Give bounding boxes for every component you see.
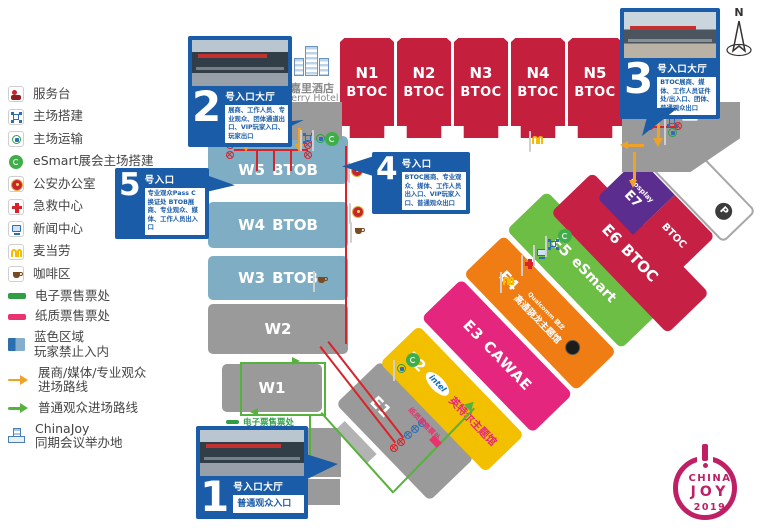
legend-item-conference: ChinaJoy同期会议举办地 [8,422,200,451]
intel-logo: intel [422,368,453,400]
paper-ticket-bar-icon [8,314,26,320]
legend-label: 咖啡区 [33,267,71,281]
construction-icon [8,109,24,125]
legend-label: 主场搭建 [33,109,83,123]
entrance-photo [192,40,288,86]
hall-id: N1 [356,64,379,82]
mcdonalds-icon [8,244,24,260]
visitor-route-arrow-icon [250,408,258,416]
ticket-booth-marker-icon [226,151,234,159]
hall-id: W4 [238,216,265,234]
legend-label: 服务台 [33,87,71,101]
legend-label: 展商/媒体/专业观众 [38,366,146,380]
hall-w2: W2 [208,304,348,354]
hall-type: BTOB [272,269,318,287]
hall-n1: N1BTOC [340,38,394,138]
exhibitor-route [628,144,644,147]
mcdonalds-icon [500,272,502,293]
exhibitor-route [633,152,636,180]
legend-item-coffee: 咖啡区 [8,266,200,282]
hall-type: BTOB [272,216,318,234]
visitor-route-arrow-icon [8,403,29,413]
legend-label: 玩家禁止入内 [34,345,109,359]
north-compass-icon [724,19,754,63]
exclamation-icon [702,444,708,461]
legend-label: ChinaJoy [35,422,123,436]
hall-n3: N3BTOC [454,38,508,138]
hall-id: E3 [459,317,486,344]
legend-label: 普通观众进场路线 [38,401,138,415]
exclamation-icon [703,463,708,468]
news-center-icon [8,221,24,237]
hall-type: BTOC [517,85,558,100]
visitor-route-arrow-icon [292,357,300,365]
legend-label: 纸质票售票处 [35,309,110,323]
coffee-icon [350,222,352,243]
entrance5-callout: 5 号入口 专业观众Pass C换证处 BTOB展商、专业观众、媒体、工作人员出… [115,168,209,239]
exhibitor-route-arrow-icon [629,180,637,188]
entrance1-annex [307,479,340,505]
entrance-title: 号入口 [402,156,466,170]
hall-id: W5 [238,161,265,179]
coffee-icon [8,266,24,282]
blue-zone-icon [8,338,25,351]
entrance-desc: 普通观众入口 [233,495,304,513]
parking-icon: P [712,199,736,223]
transport-icon [312,130,314,151]
ticket-booth-marker-icon [404,431,412,439]
hall-type: BTOC [460,85,501,100]
kerry-hotel-icon [292,46,330,78]
legend-label: 电子票售票处 [35,289,110,303]
mcdonalds-icon [529,131,531,152]
entrance-number: 4 [376,156,398,182]
legend-item-transport: 主场运输 [8,131,200,147]
entrance-desc: 展商、工作人员、专业观众、团体通道出口、VIP玩家入口、玩家出口 [225,105,288,143]
legend-item-eticket: 电子票售票处 [8,289,200,303]
eticket-bar-icon [226,420,239,425]
entrance-photo [200,430,304,476]
queue-rail [290,149,292,171]
ticket-booth-marker-icon [411,425,419,433]
transport-icon [8,131,24,147]
chinajoy-logo: CHINA JOY 2019 [664,444,756,526]
north-compass: N [722,6,756,67]
legend-label: 麦当劳 [33,244,71,258]
entrance2-callout: 2 号入口大厅 展商、工作人员、专业观众、团体通道出口、VIP玩家入口、玩家出口 [188,36,292,147]
queue-rail [256,149,258,171]
conference-building-icon [8,428,26,444]
entrance-number: 2 [192,89,221,125]
entrance1-callout: 1 号入口大厅 普通观众入口 [196,426,308,519]
entrance-photo [624,12,716,58]
hall-n4: N4BTOC [511,38,565,138]
north-label: N [722,6,756,19]
entrance-desc: 专业观众Pass C换证处 BTOB展商、专业观众、媒体、工作人员出入口 [145,188,205,235]
legend-label: 蓝色区域 [34,330,109,344]
entrance-number: 3 [624,61,653,97]
esmart-icon [8,154,24,170]
ticket-booth-marker-icon [397,438,405,446]
news-center-icon [533,245,535,266]
construction-icon [300,130,302,151]
legend-item-service-desk: 服务台 [8,86,200,102]
police-icon [349,203,351,224]
legend-label: 新闻中心 [33,222,83,236]
legend-label: 进场路线 [38,380,146,394]
legend-item-mcdonalds: 麦当劳 [8,244,200,260]
legend-item-construction: 主场搭建 [8,109,200,125]
construction-icon [545,236,547,257]
exhibitor-route-arrow-icon [620,141,628,149]
service-desk-icon [8,86,24,102]
legend-item-blue-zone: 蓝色区域玩家禁止入内 [8,330,200,359]
hall-n2: N2BTOC [397,38,451,138]
legend-label: 公安办公室 [33,177,96,191]
exhibitor-route-arrow-icon [8,375,29,385]
hall-id: N4 [527,64,550,82]
entrance3-callout: 3 号入口大厅 BTOC展商、媒体、工作人员证件处/出入口、团体、普通观众出口 [620,8,720,119]
eticket-bar-icon [8,293,26,299]
first-aid-icon [521,255,523,276]
ticket-booth-marker-icon [390,444,398,452]
hall-type: BTOC [574,85,615,100]
hall-type: BTOC [346,85,387,100]
entrance-number: 1 [200,479,229,515]
legend-label: 主场运输 [33,132,83,146]
legend-item-visitor-route: 普通观众进场路线 [8,401,200,415]
entrance4-callout: 4 号入口 BTOC展商、专业观众、媒体、工作人员出入口、VIP玩家入口、普通观… [372,152,470,214]
hall-id: N3 [470,64,493,82]
entrance-number: 5 [119,172,141,198]
exhibitor-route-arrow-icon [653,138,663,147]
entrance-title: 号入口大厅 [657,61,716,75]
first-aid-icon [8,199,24,215]
hall-type: BTOC [403,85,444,100]
legend-item-exhibitor-route: 展商/媒体/专业观众进场路线 [8,366,200,395]
coffee-icon [313,271,315,292]
hall-w4: W4BTOB [208,202,348,248]
queue-rail [273,149,275,171]
legend-label: 急救中心 [33,199,83,213]
hall-id: E6 [598,220,625,247]
logo-text-joy: JOY [664,484,756,500]
entrance-title: 号入口大厅 [225,89,288,103]
entrance-desc: BTOC展商、专业观众、媒体、工作人员出入口、VIP玩家入口、普通观众出口 [402,172,466,210]
transport-icon [664,124,666,145]
entrance-title: 号入口 [145,172,205,186]
ticket-booth-marker-icon [304,151,312,159]
hall-type: BTOB [272,161,318,179]
hall-id: N5 [584,64,607,82]
hall-type: CAWAE [480,338,535,394]
logo-text-china: CHINA [664,473,756,484]
visitor-route [309,416,311,458]
ticket-booth-marker-icon [304,141,312,149]
hall-type: BTOC [660,221,689,250]
legend-item-paper-ticket: 纸质票售票处 [8,309,200,323]
hall-n5: N5BTOC [568,38,622,138]
police-icon [8,176,24,192]
entrance-title: 号入口大厅 [233,479,304,493]
snapdragon-icon [563,337,584,358]
venue-map: 服务台 主场搭建 主场运输 eSmart展会主场搭建 公安办公室 急救中心 新闻… [0,0,778,530]
hall-id: N2 [413,64,436,82]
legend-label: 同期会议举办地 [35,436,123,450]
logo-text-year: 2019 [664,502,756,513]
hall-id: W2 [265,320,292,338]
legend: 服务台 主场搭建 主场运输 eSmart展会主场搭建 公安办公室 急救中心 新闻… [8,86,200,450]
transport-icon [393,360,395,381]
paper-ticket-route [345,146,347,344]
hall-id: W3 [238,269,265,287]
